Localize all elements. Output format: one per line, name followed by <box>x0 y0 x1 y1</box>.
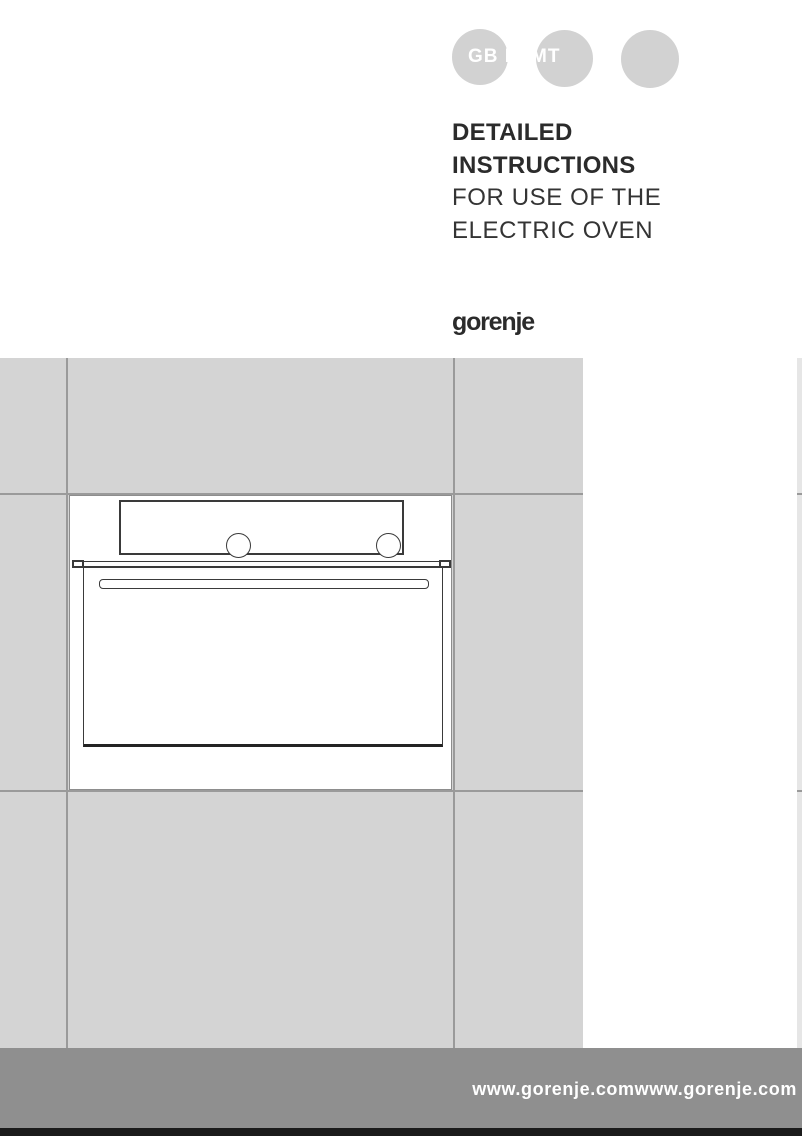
oven-knob-right-icon <box>376 533 401 558</box>
tile-grout-horizontal-bottom <box>0 790 583 792</box>
oven-door <box>83 567 443 747</box>
oven-trim-cap-left <box>72 560 84 568</box>
title-line-1: DETAILED <box>452 117 661 150</box>
tile-grout-vertical-right <box>453 358 455 1048</box>
manual-cover-page: GB IE MT DETAILED INSTRUCTIONS FOR USE O… <box>0 0 802 1136</box>
tile-grout-right-edge-bottom <box>797 790 802 792</box>
language-badge-circle-3 <box>621 30 679 88</box>
oven-knob-left-icon <box>226 533 251 558</box>
page-title: DETAILED INSTRUCTIONS FOR USE OF THE ELE… <box>452 117 661 247</box>
footer-black-bar <box>0 1128 802 1136</box>
oven-niche <box>69 495 452 790</box>
oven-control-panel <box>119 500 404 555</box>
title-line-4: ELECTRIC OVEN <box>452 215 661 248</box>
title-line-2: INSTRUCTIONS <box>452 150 661 183</box>
oven-door-handle <box>99 579 429 589</box>
title-line-3: FOR USE OF THE <box>452 182 661 215</box>
tile-grout-vertical-left <box>66 358 68 1048</box>
gorenje-logo: gorenje <box>452 308 534 337</box>
oven-trim-cap-right <box>439 560 451 568</box>
tile-grout-right-edge-top <box>797 493 802 495</box>
footer-band: www.gorenje.comwww.gorenje.com <box>0 1048 802 1128</box>
website-url: www.gorenje.comwww.gorenje.com <box>472 1079 797 1100</box>
tile-wall-right-edge <box>797 358 802 1048</box>
language-codes-label: GB IE MT <box>468 47 560 67</box>
